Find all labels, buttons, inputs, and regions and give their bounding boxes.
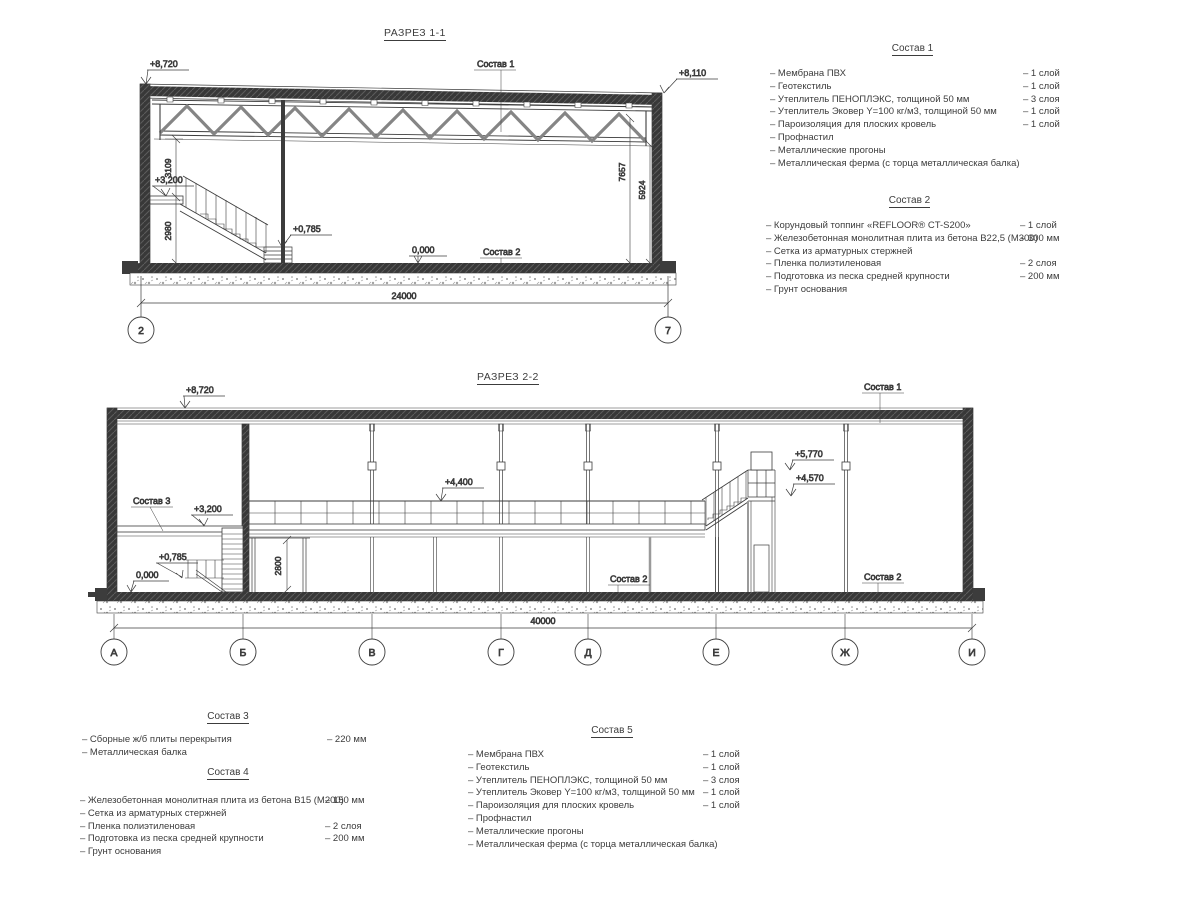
axis-label: Д xyxy=(584,647,591,659)
composition-item: – Пароизоляция для плоских кровель– 1 сл… xyxy=(468,800,740,813)
item-name: – Пароизоляция для плоских кровель xyxy=(770,119,1023,132)
dim-right: 7657 5924 xyxy=(617,114,654,267)
ref-text: Состав 2 xyxy=(483,247,520,257)
elevation-text: +5,770 xyxy=(795,449,823,459)
door-opening: 2800 xyxy=(249,536,310,594)
composition-item: – Грунт основания xyxy=(80,846,364,859)
composition-item: – Профнастил xyxy=(468,813,740,826)
composition-title-text: Состав 4 xyxy=(207,767,248,780)
elevation-mark2-0785: +0,785 xyxy=(156,552,198,578)
elevation-text: 0,000 xyxy=(412,245,435,255)
dim-text: 40000 xyxy=(530,616,555,626)
elevation-mark2-8720: +8,720 xyxy=(180,385,225,408)
stair-front xyxy=(185,528,243,592)
axis-label: 2 xyxy=(138,325,144,337)
elevation-text: +8,110 xyxy=(679,68,706,78)
composition-item: – Утеплитель ПЕНОПЛЭКС, толщиной 50 мм– … xyxy=(468,775,740,788)
item-value: – 3 слоя xyxy=(1023,94,1060,107)
item-name: – Железобетонная монолитная плита из бет… xyxy=(766,233,1020,246)
axis-label: 7 xyxy=(665,325,671,337)
composition-item: – Железобетонная монолитная плита из бет… xyxy=(766,233,1059,246)
composition-item: – Пароизоляция для плоских кровель– 1 сл… xyxy=(770,119,1060,132)
floor-slab xyxy=(122,261,676,285)
item-value: – 220 мм xyxy=(327,734,366,747)
elevation-mark-3200: +3,200 xyxy=(152,175,194,196)
ref-text: Состав 3 xyxy=(133,496,170,506)
composition-4-list: – Железобетонная монолитная плита из бет… xyxy=(80,795,364,859)
walkway xyxy=(249,501,705,537)
item-value: – 1 слой xyxy=(1023,106,1060,119)
composition-item: – Металлическая ферма (с торца металличе… xyxy=(468,839,740,852)
composition-item: – Сетка из арматурных стержней xyxy=(766,246,1059,259)
composition-3-list: – Сборные ж/б плиты перекрытия– 220 мм– … xyxy=(82,734,366,760)
section-1-1-drawing: +8,720 +8,110 +3,200 +0,785 0,000 Сост xyxy=(122,59,718,343)
item-value: – 1 слой xyxy=(1020,220,1057,233)
elevation-text: +3,200 xyxy=(194,504,222,514)
axis-label: Ж xyxy=(840,647,850,659)
axis-label: В xyxy=(368,647,375,659)
ref-text: Состав 2 xyxy=(610,574,647,584)
wall-a xyxy=(107,408,117,601)
right-wall xyxy=(652,93,662,274)
item-value: – 2 слоя xyxy=(325,821,362,834)
item-name: – Пароизоляция для плоских кровель xyxy=(468,800,703,813)
item-name: – Пленка полиэтиленовая xyxy=(766,258,1020,271)
wall-i xyxy=(963,408,973,601)
composition-item: – Утеплитель ПЕНОПЛЭКС, толщиной 50 мм– … xyxy=(770,94,1060,107)
composition-item: – Утеплитель Эковер Y=100 кг/м3, толщино… xyxy=(468,787,740,800)
item-name: – Профнастил xyxy=(770,132,1023,145)
item-name: – Металлические прогоны xyxy=(468,826,703,839)
interior-column xyxy=(281,100,285,263)
item-value: – 300 мм xyxy=(1020,233,1059,246)
item-value: – 1 слой xyxy=(703,762,740,775)
item-name: – Утеплитель ПЕНОПЛЭКС, толщиной 50 мм xyxy=(468,775,703,788)
elevation-mark2-0000: 0,000 xyxy=(127,570,169,592)
axis-label: А xyxy=(110,647,117,659)
item-value: – 3 слоя xyxy=(703,775,740,788)
item-name: – Геотекстиль xyxy=(468,762,703,775)
item-name: – Корундовый топпинг «REFLOOR® CT-S200» xyxy=(766,220,1020,233)
composition-item: – Грунт основания xyxy=(766,284,1059,297)
item-value: – 1 слой xyxy=(1023,68,1060,81)
composition-item: – Металлическая балка xyxy=(82,747,366,760)
elevation-mark-0000: 0,000 xyxy=(409,245,447,263)
composition-item: – Сборные ж/б плиты перекрытия– 220 мм xyxy=(82,734,366,747)
roof-deck-2 xyxy=(107,408,973,424)
item-name: – Металлические прогоны xyxy=(770,145,1023,158)
axis-label: Б xyxy=(240,647,247,659)
stair xyxy=(180,176,292,263)
item-name: – Сборные ж/б плиты перекрытия xyxy=(82,734,327,747)
item-value: – 1 слой xyxy=(703,800,740,813)
item-value: – 2 слоя xyxy=(1020,258,1057,271)
composition-3-title: Состав 3 xyxy=(78,711,378,724)
composition-1-title: Состав 1 xyxy=(765,43,1060,56)
composition-item: – Геотекстиль– 1 слой xyxy=(770,81,1060,94)
dim-text: 2980 xyxy=(163,221,173,240)
elevation-mark-8720: +8,720 xyxy=(141,59,189,84)
item-value: – 1 слой xyxy=(703,787,740,800)
item-name: – Геотекстиль xyxy=(770,81,1023,94)
elevation-text: +4,570 xyxy=(796,473,824,483)
item-name: – Мембрана ПВХ xyxy=(468,749,703,762)
item-name: – Металлическая балка xyxy=(82,747,327,760)
dim-text: 5924 xyxy=(637,180,647,199)
composition-title-text: Состав 3 xyxy=(207,711,248,724)
item-name: – Железобетонная монолитная плита из бет… xyxy=(80,795,325,808)
roof-truss xyxy=(152,97,652,146)
axis-label: Е xyxy=(712,647,719,659)
composition-item: – Металлические прогоны xyxy=(468,826,740,839)
composition-item: – Железобетонная монолитная плита из бет… xyxy=(80,795,364,808)
dim-span-2: 40000 xyxy=(110,614,976,639)
elevation-text: 0,000 xyxy=(136,570,159,580)
composition-item: – Сетка из арматурных стержней xyxy=(80,808,364,821)
item-name: – Сетка из арматурных стержней xyxy=(80,808,325,821)
composition-item: – Пленка полиэтиленовая– 2 слоя xyxy=(766,258,1059,271)
item-name: – Грунт основания xyxy=(766,284,1020,297)
elevation-mark2-5770: +5,770 xyxy=(785,449,834,470)
item-name: – Мембрана ПВХ xyxy=(770,68,1023,81)
item-name: – Подготовка из песка средней крупности xyxy=(766,271,1020,284)
composition-title-text: Состав 2 xyxy=(889,195,930,208)
axis-label: Г xyxy=(498,647,504,659)
partitions xyxy=(371,537,719,592)
elevation-mark-0785: +0,785 xyxy=(278,224,332,247)
composition-item: – Подготовка из песка средней крупности–… xyxy=(80,833,364,846)
composition-item: – Геотекстиль– 1 слой xyxy=(468,762,740,775)
item-name: – Подготовка из песка средней крупности xyxy=(80,833,325,846)
drawing-sheet: РАЗРЕЗ 1-1 РАЗРЕЗ 2-2 xyxy=(0,0,1200,900)
composition-item: – Утеплитель Эковер Y=100 кг/м3, толщино… xyxy=(770,106,1060,119)
composition-item: – Мембрана ПВХ– 1 слой xyxy=(770,68,1060,81)
columns xyxy=(368,424,850,592)
item-name: – Металлическая ферма (с торца металличе… xyxy=(770,158,1023,171)
left-wall xyxy=(140,84,150,274)
axis-label: И xyxy=(968,647,976,659)
item-name: – Профнастил xyxy=(468,813,703,826)
ref-text: Состав 1 xyxy=(864,382,901,392)
composition-title-text: Состав 5 xyxy=(591,725,632,738)
composition-item: – Мембрана ПВХ– 1 слой xyxy=(468,749,740,762)
composition-5-list: – Мембрана ПВХ– 1 слой– Геотекстиль– 1 с… xyxy=(468,749,740,851)
axis-bubbles-2: А Б В Г Д Е Ж И xyxy=(101,639,985,665)
mezzanine-slab xyxy=(150,196,183,204)
composition-2-list: – Корундовый топпинг «REFLOOR® CT-S200»–… xyxy=(766,220,1059,297)
composition-item: – Профнастил xyxy=(770,132,1060,145)
item-value: – 1 слой xyxy=(1023,81,1060,94)
item-name: – Пленка полиэтиленовая xyxy=(80,821,325,834)
elevation-mark-8110: +8,110 xyxy=(660,68,718,93)
elevation-text: +0,785 xyxy=(293,224,321,234)
elevation-text: +8,720 xyxy=(186,385,214,395)
item-name: – Утеплитель Эковер Y=100 кг/м3, толщино… xyxy=(770,106,1023,119)
item-name: – Сетка из арматурных стержней xyxy=(766,246,1020,259)
section-2-2-drawing: 2800 xyxy=(88,382,985,665)
composition-2-title: Состав 2 xyxy=(762,195,1057,208)
elevation-text: +0,785 xyxy=(159,552,187,562)
dim-text: 2800 xyxy=(273,556,283,575)
item-value: – 1 слой xyxy=(1023,119,1060,132)
composition-4-title: Состав 4 xyxy=(78,767,378,780)
item-value: – 1 слой xyxy=(703,749,740,762)
dim-text: 24000 xyxy=(391,291,416,301)
dim-text: 3109 xyxy=(163,158,173,177)
composition-item: – Пленка полиэтиленовая– 2 слоя xyxy=(80,821,364,834)
elevation-mark2-4400: +4,400 xyxy=(436,477,484,501)
item-name: – Утеплитель ПЕНОПЛЭКС, толщиной 50 мм xyxy=(770,94,1023,107)
elevation-text: +4,400 xyxy=(445,477,473,487)
item-name: – Утеплитель Эковер Y=100 кг/м3, толщино… xyxy=(468,787,703,800)
composition-item: – Корундовый топпинг «REFLOOR® CT-S200»–… xyxy=(766,220,1059,233)
elevation-mark2-3200: +3,200 xyxy=(191,504,233,526)
composition-item: – Подготовка из песка средней крупности–… xyxy=(766,271,1059,284)
item-name: – Грунт основания xyxy=(80,846,325,859)
elevation-mark2-4570: +4,570 xyxy=(786,473,835,496)
composition-title-text: Состав 1 xyxy=(892,43,933,56)
dim-text: 7657 xyxy=(617,162,627,181)
item-value: – 200 мм xyxy=(325,833,364,846)
composition-item: – Металлическая ферма (с торца металличе… xyxy=(770,158,1060,171)
walkway-railing xyxy=(249,501,705,524)
composition-5-title: Состав 5 xyxy=(462,725,762,738)
axis-bubbles-1: 2 7 xyxy=(128,317,681,343)
composition-item: – Металлические прогоны xyxy=(770,145,1060,158)
item-value: – 200 мм xyxy=(1020,271,1059,284)
item-name: – Металлическая ферма (с торца металличе… xyxy=(468,839,703,852)
shaft xyxy=(748,497,775,592)
ref-text: Состав 2 xyxy=(864,572,901,582)
elevation-text: +8,720 xyxy=(150,59,178,69)
ref-text: Состав 1 xyxy=(477,59,514,69)
composition-1-list: – Мембрана ПВХ– 1 слой– Геотекстиль– 1 с… xyxy=(770,68,1060,170)
item-value: – 150 мм xyxy=(325,795,364,808)
